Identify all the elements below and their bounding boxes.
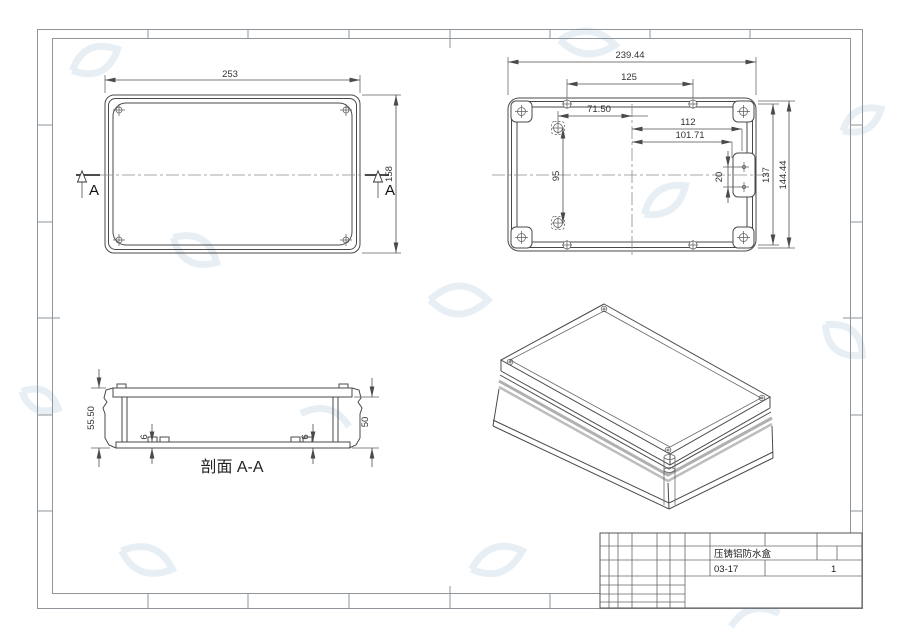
- dim-text-112: 112: [680, 117, 695, 128]
- dim-95: 95: [551, 128, 563, 223]
- title-block-sheet-number: 1: [831, 564, 836, 575]
- back-view: 239.44 125 71.50 112 101.71: [492, 50, 795, 256]
- dim-6-left: 6: [139, 424, 152, 464]
- dim-158: 158: [362, 95, 401, 253]
- section-caption: 剖面 A-A: [200, 458, 263, 476]
- dim-253: 253: [105, 69, 360, 93]
- dim-137: 137: [758, 104, 779, 245]
- section-label-a-left: A: [89, 182, 99, 199]
- section-floor-bosses: [148, 437, 312, 442]
- dim-text-137: 137: [761, 167, 772, 183]
- engineering-drawing-page: A A 253 158: [0, 0, 900, 636]
- isometric-view: [493, 304, 773, 509]
- dim-text-20: 20: [714, 172, 725, 183]
- dim-10171: 101.71: [632, 130, 732, 158]
- dim-text-7150: 71.50: [587, 104, 611, 115]
- section-view: 55.50 50 6 6 剖面 A-A: [86, 369, 379, 476]
- section-label-a-right: A: [385, 182, 395, 199]
- dim-text-253: 253: [222, 69, 238, 80]
- dim-5550: 55.50: [86, 369, 110, 467]
- dim-text-14444: 144.44: [778, 160, 789, 189]
- dim-text-125: 125: [621, 72, 637, 83]
- title-block-drawing-code: 03-17: [714, 564, 738, 575]
- dim-text-6-left: 6: [139, 434, 150, 439]
- front-view: A A 253 158: [76, 69, 401, 253]
- dim-text-239: 239.44: [615, 50, 644, 61]
- dim-6-right: 6: [300, 424, 313, 464]
- dim-text-95: 95: [551, 171, 562, 182]
- dim-text-158: 158: [384, 166, 395, 182]
- drawing-canvas: A A 253 158: [0, 0, 900, 636]
- dim-text-5550: 55.50: [86, 406, 97, 430]
- dim-text-6-right: 6: [300, 434, 311, 439]
- mid-edge-screws: [562, 99, 698, 250]
- section-lid-rim: [113, 388, 352, 397]
- section-floor: [116, 442, 350, 448]
- title-block-part-name: 压铸铝防水盒: [714, 548, 772, 560]
- dim-125: 125: [567, 72, 693, 98]
- title-block: 压铸铝防水盒 03-17 1: [600, 533, 862, 608]
- dim-50: 50: [352, 378, 379, 467]
- dim-text-50: 50: [360, 417, 371, 428]
- dim-text-10171: 101.71: [675, 130, 704, 141]
